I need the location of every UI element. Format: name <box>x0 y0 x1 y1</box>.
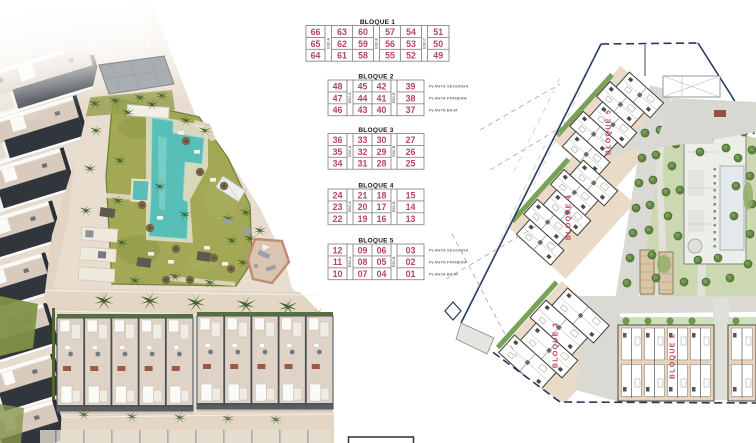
svg-text:ESC-B: ESC-B <box>375 37 379 48</box>
svg-text:ESC-A: ESC-A <box>348 256 352 267</box>
svg-text:57: 57 <box>385 27 395 37</box>
svg-text:48: 48 <box>333 81 343 91</box>
svg-text:59: 59 <box>358 39 368 49</box>
svg-text:PLANTA PRIMERA: PLANTA PRIMERA <box>429 96 467 101</box>
svg-text:24: 24 <box>333 190 343 200</box>
svg-text:23: 23 <box>333 202 343 212</box>
svg-text:41: 41 <box>377 93 387 103</box>
svg-text:BLOQUE 4: BLOQUE 4 <box>566 194 573 240</box>
svg-text:37: 37 <box>406 105 416 115</box>
svg-text:15: 15 <box>406 190 416 200</box>
svg-text:12: 12 <box>333 245 343 255</box>
svg-text:66: 66 <box>311 27 321 37</box>
svg-text:ESC-B: ESC-B <box>392 201 396 212</box>
svg-text:28: 28 <box>377 159 387 169</box>
svg-text:13: 13 <box>406 214 416 224</box>
svg-text:03: 03 <box>406 245 416 255</box>
svg-text:62: 62 <box>337 39 347 49</box>
svg-text:11: 11 <box>333 257 342 267</box>
svg-text:14: 14 <box>406 202 416 212</box>
svg-text:ESC-C: ESC-C <box>423 37 427 48</box>
svg-text:18: 18 <box>377 190 387 200</box>
svg-text:39: 39 <box>406 81 416 91</box>
svg-text:BLOQUE 2: BLOQUE 2 <box>670 333 677 379</box>
svg-text:61: 61 <box>337 51 347 61</box>
svg-text:20: 20 <box>358 202 368 212</box>
svg-text:34: 34 <box>333 159 343 169</box>
svg-text:10: 10 <box>333 269 343 279</box>
svg-text:30: 30 <box>377 135 387 145</box>
svg-text:09: 09 <box>358 245 368 255</box>
svg-text:33: 33 <box>358 135 368 145</box>
svg-text:58: 58 <box>358 51 368 61</box>
svg-text:BLOQUE 5: BLOQUE 5 <box>606 109 613 155</box>
svg-text:29: 29 <box>377 147 387 157</box>
svg-text:27: 27 <box>406 135 416 145</box>
svg-text:38: 38 <box>406 93 416 103</box>
svg-text:63: 63 <box>337 27 347 37</box>
svg-text:46: 46 <box>333 105 343 115</box>
svg-text:64: 64 <box>311 51 321 61</box>
svg-text:01: 01 <box>406 269 416 279</box>
svg-text:40: 40 <box>377 105 387 115</box>
svg-text:26: 26 <box>406 147 416 157</box>
svg-text:PLANTA SEGUNDA: PLANTA SEGUNDA <box>429 248 469 253</box>
svg-text:07: 07 <box>358 269 368 279</box>
svg-text:50: 50 <box>433 39 443 49</box>
svg-text:43: 43 <box>358 105 368 115</box>
svg-text:55: 55 <box>385 51 395 61</box>
svg-text:BLOQUE 5: BLOQUE 5 <box>358 237 393 244</box>
svg-text:BLOQUE 2: BLOQUE 2 <box>358 73 393 80</box>
svg-text:ESC-A: ESC-A <box>348 145 352 156</box>
svg-text:BLOQUE 4: BLOQUE 4 <box>358 182 393 189</box>
svg-text:32: 32 <box>358 147 368 157</box>
svg-text:45: 45 <box>358 81 368 91</box>
svg-text:36: 36 <box>333 135 343 145</box>
svg-text:PLANTA PRIMERA: PLANTA PRIMERA <box>429 260 467 265</box>
svg-text:49: 49 <box>433 51 443 61</box>
svg-text:05: 05 <box>377 257 387 267</box>
svg-text:PLANTA BAJA: PLANTA BAJA <box>429 108 458 113</box>
svg-text:22: 22 <box>333 214 343 224</box>
svg-text:17: 17 <box>377 202 387 212</box>
svg-text:65: 65 <box>311 39 321 49</box>
svg-text:ESC-B: ESC-B <box>392 145 396 156</box>
svg-text:31: 31 <box>358 159 368 169</box>
svg-text:44: 44 <box>358 93 368 103</box>
svg-text:56: 56 <box>385 39 395 49</box>
svg-text:54: 54 <box>406 27 416 37</box>
svg-text:06: 06 <box>377 245 387 255</box>
svg-text:25: 25 <box>406 159 416 169</box>
svg-text:ESC-A: ESC-A <box>348 92 352 103</box>
svg-text:21: 21 <box>358 190 368 200</box>
svg-text:02: 02 <box>406 257 416 267</box>
svg-text:BLOQUE 3: BLOQUE 3 <box>358 127 393 134</box>
svg-text:BLOQUE 1: BLOQUE 1 <box>360 19 395 26</box>
svg-text:16: 16 <box>377 214 387 224</box>
svg-text:BLOQUE 3: BLOQUE 3 <box>553 322 560 368</box>
svg-text:ESC-A: ESC-A <box>348 201 352 212</box>
svg-text:52: 52 <box>406 51 416 61</box>
svg-text:ESC-A: ESC-A <box>326 37 330 48</box>
svg-text:47: 47 <box>333 93 343 103</box>
svg-text:35: 35 <box>333 147 343 157</box>
svg-text:04: 04 <box>377 269 387 279</box>
svg-text:19: 19 <box>358 214 368 224</box>
svg-text:08: 08 <box>358 257 368 267</box>
svg-text:ESC-B: ESC-B <box>392 92 396 103</box>
svg-text:42: 42 <box>377 81 387 91</box>
svg-text:ESC-B: ESC-B <box>392 256 396 267</box>
svg-text:53: 53 <box>406 39 416 49</box>
svg-text:PLANTA SEGUNDA: PLANTA SEGUNDA <box>429 84 469 89</box>
svg-text:51: 51 <box>433 27 443 37</box>
svg-text:PLANTA BAJA: PLANTA BAJA <box>429 272 458 277</box>
svg-text:60: 60 <box>358 27 368 37</box>
